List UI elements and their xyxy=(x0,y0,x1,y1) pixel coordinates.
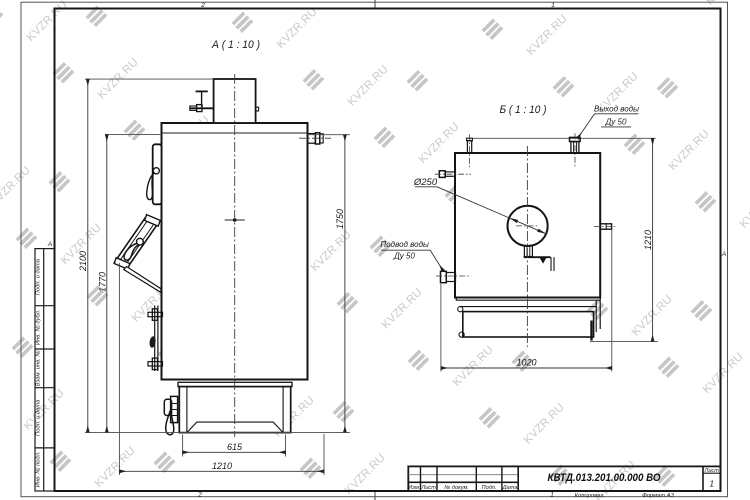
svg-text:Подп. и дата: Подп. и дата xyxy=(35,258,41,295)
svg-text:1: 1 xyxy=(709,480,713,489)
svg-text:Дата: Дата xyxy=(502,485,518,491)
svg-text:А: А xyxy=(47,241,52,248)
svg-text:Лист: Лист xyxy=(420,485,436,491)
svg-text:1750: 1750 xyxy=(335,209,345,229)
svg-text:№ докум.: № докум. xyxy=(444,485,469,491)
svg-text:1210: 1210 xyxy=(643,230,653,250)
svg-text:Подп.: Подп. xyxy=(482,485,497,491)
svg-text:Формат А3: Формат А3 xyxy=(642,493,674,499)
svg-text:А ( 1 : 10 ): А ( 1 : 10 ) xyxy=(211,39,260,51)
svg-text:Ду 50: Ду 50 xyxy=(393,251,415,260)
svg-text:Б ( 1 : 10 ): Б ( 1 : 10 ) xyxy=(500,104,547,116)
svg-text:Выход воды: Выход воды xyxy=(594,105,639,114)
svg-text:Копировал: Копировал xyxy=(575,493,605,499)
svg-text:Изм.: Изм. xyxy=(408,485,420,491)
svg-text:2100: 2100 xyxy=(78,251,88,272)
svg-text:Ду 50: Ду 50 xyxy=(605,118,627,127)
svg-text:2: 2 xyxy=(197,492,202,499)
svg-text:Подп. и дата: Подп. и дата xyxy=(35,399,41,436)
svg-text:615: 615 xyxy=(227,442,243,452)
svg-text:Инв. № подл.: Инв. № подл. xyxy=(35,451,41,487)
svg-text:Подвод воды: Подвод воды xyxy=(380,240,429,249)
svg-text:1770: 1770 xyxy=(98,272,108,292)
svg-text:1020: 1020 xyxy=(516,358,536,368)
svg-text:А: А xyxy=(721,251,726,258)
svg-text:Инв. № дубл.: Инв. № дубл. xyxy=(35,309,41,345)
svg-text:КВТД.013.201.00.000 ВО: КВТД.013.201.00.000 ВО xyxy=(548,472,662,484)
svg-text:1: 1 xyxy=(550,492,554,499)
svg-text:1210: 1210 xyxy=(212,461,232,471)
svg-text:Взам. инв. №: Взам. инв. № xyxy=(35,350,41,386)
svg-text:Лист: Лист xyxy=(703,468,719,474)
